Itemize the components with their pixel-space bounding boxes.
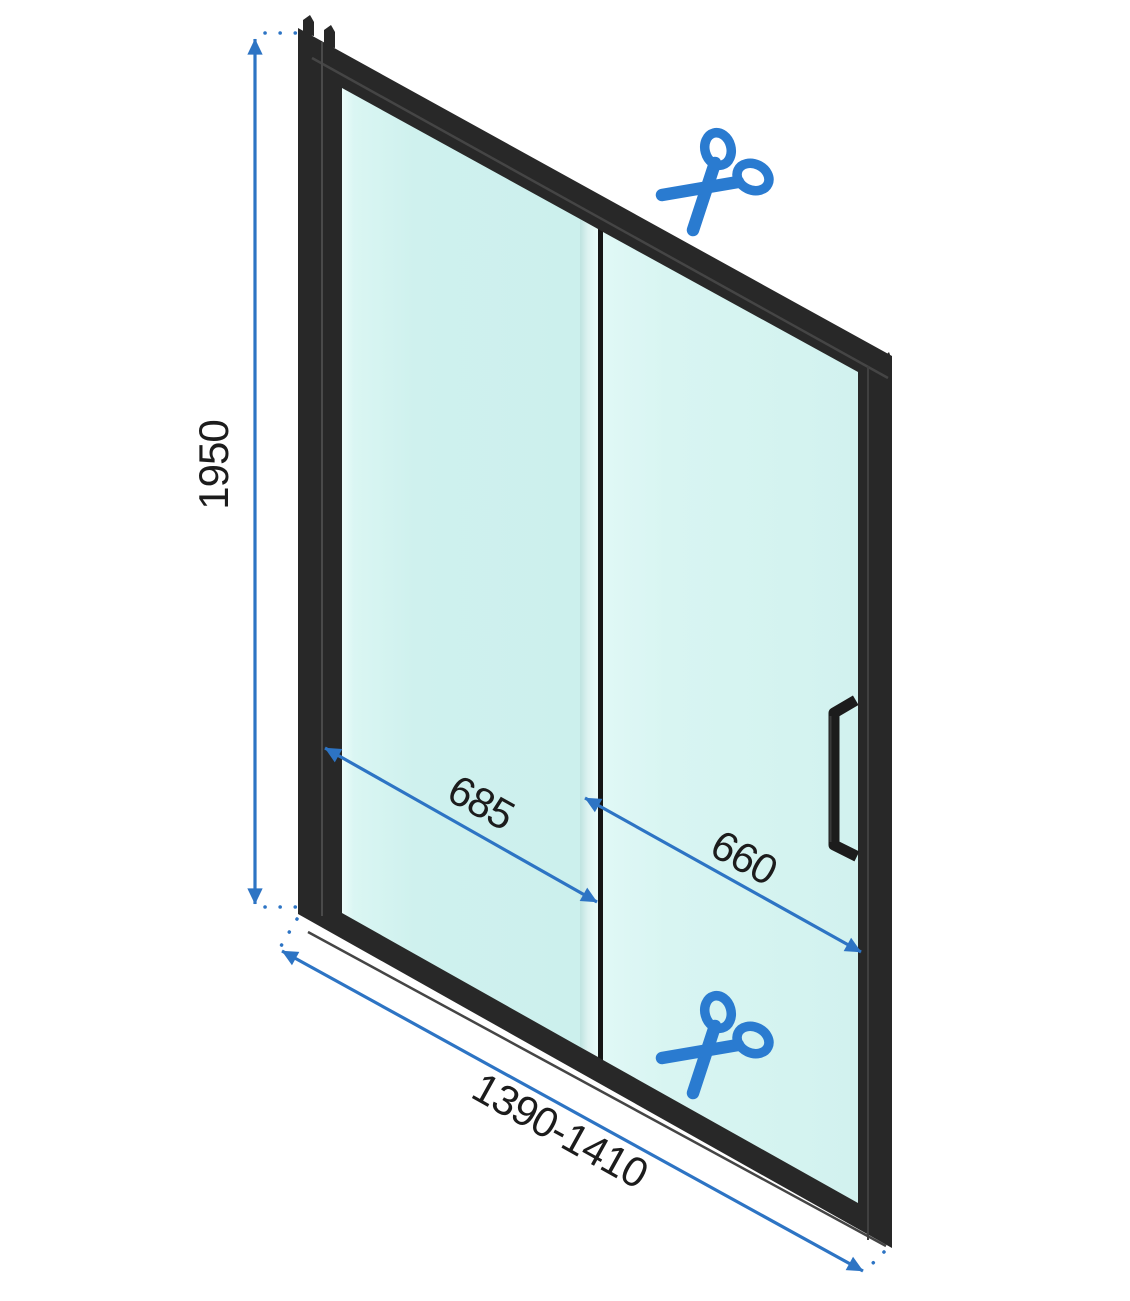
glass-panel-right <box>603 232 858 1203</box>
glass-panel-left <box>342 88 580 1047</box>
wall-profile-tab-left <box>303 15 314 36</box>
shower-door <box>298 15 892 1248</box>
extension-dots-corner-left <box>281 919 297 946</box>
panel-overlap-edge <box>580 219 598 1057</box>
extension-dots-corner-right <box>868 1252 884 1268</box>
panel-divider-line <box>598 229 603 1060</box>
dimension-label-height: 1950 <box>190 420 237 509</box>
dimension-height <box>255 33 299 907</box>
frame-tab-left <box>324 25 335 48</box>
diagram-canvas: 1950 685 660 1390-1410 <box>0 0 1130 1301</box>
shower-door-dimension-diagram: 1950 685 660 1390-1410 <box>0 0 1130 1301</box>
scissors-icon-top <box>662 130 773 230</box>
